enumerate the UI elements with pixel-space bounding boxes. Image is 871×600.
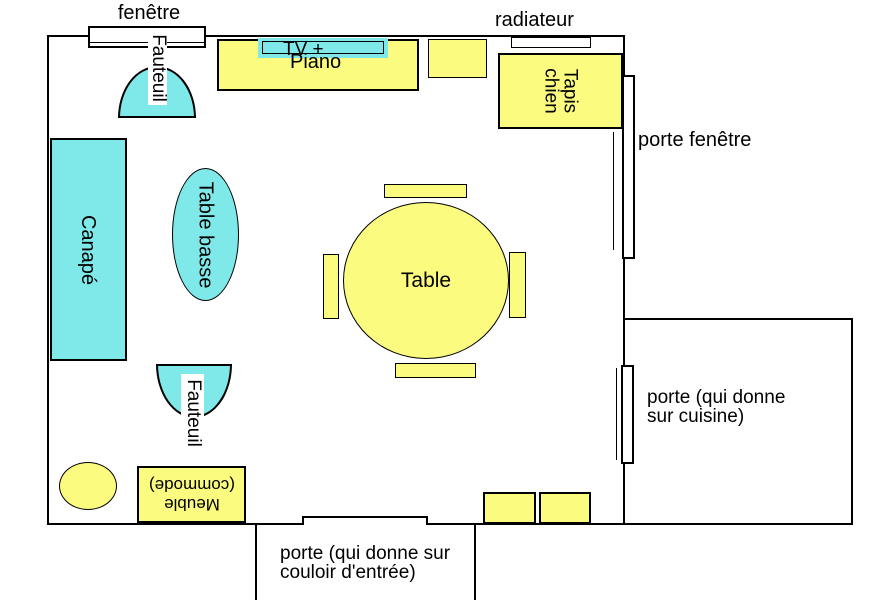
coffee-table-label: Table basse <box>195 181 217 288</box>
radiator-label: radiateur <box>495 9 574 31</box>
chair-south <box>395 363 476 378</box>
french-door-label: porte fenêtre <box>638 129 751 151</box>
armchair-top-label: Fauteuil <box>147 34 169 102</box>
cabinet-label: Meuble (commode) <box>149 476 235 514</box>
wall-left <box>47 35 49 525</box>
sofa-label: Canapé <box>78 214 100 284</box>
dog-rug-label: Tapis chien <box>541 68 579 113</box>
floor-plan: Tapis chien Fauteuil Canapé Table basse … <box>0 0 871 600</box>
dog-rug: Tapis chien <box>498 53 623 129</box>
kitchen-wall-top <box>623 318 853 320</box>
chair-west <box>323 254 339 319</box>
seat-bottom-right <box>539 492 591 524</box>
kitchen-door-symbol <box>621 365 634 464</box>
armchair-bottom-label: Fauteuil <box>182 379 204 447</box>
cabinet: Meuble (commode) <box>137 466 246 523</box>
french-door-symbol <box>622 75 635 259</box>
chair-north <box>384 184 467 198</box>
side-table-top <box>428 39 487 78</box>
round-stool <box>59 462 117 510</box>
dining-table: Table <box>343 202 509 359</box>
kitchen-door-leaf-line <box>616 368 617 460</box>
french-door-leaf-line <box>613 132 614 250</box>
sofa: Canapé <box>50 138 127 361</box>
chair-east <box>509 252 526 318</box>
kitchen-door-label: porte (qui donne sur cuisine) <box>647 388 785 426</box>
hall-door-label: porte (qui donne sur couloir d'entrée) <box>280 544 450 582</box>
kitchen-wall-right <box>851 318 853 525</box>
dining-table-label: Table <box>401 269 451 293</box>
seat-bottom-left <box>483 492 536 524</box>
armchair-top-label-strip: Fauteuil <box>148 31 167 105</box>
armchair-bottom-label-strip: Fauteuil <box>181 374 204 452</box>
coffee-table: Table basse <box>172 168 239 301</box>
piano-label: Piano <box>290 51 341 73</box>
radiator-symbol <box>511 37 591 48</box>
window-label: fenêtre <box>93 2 205 24</box>
